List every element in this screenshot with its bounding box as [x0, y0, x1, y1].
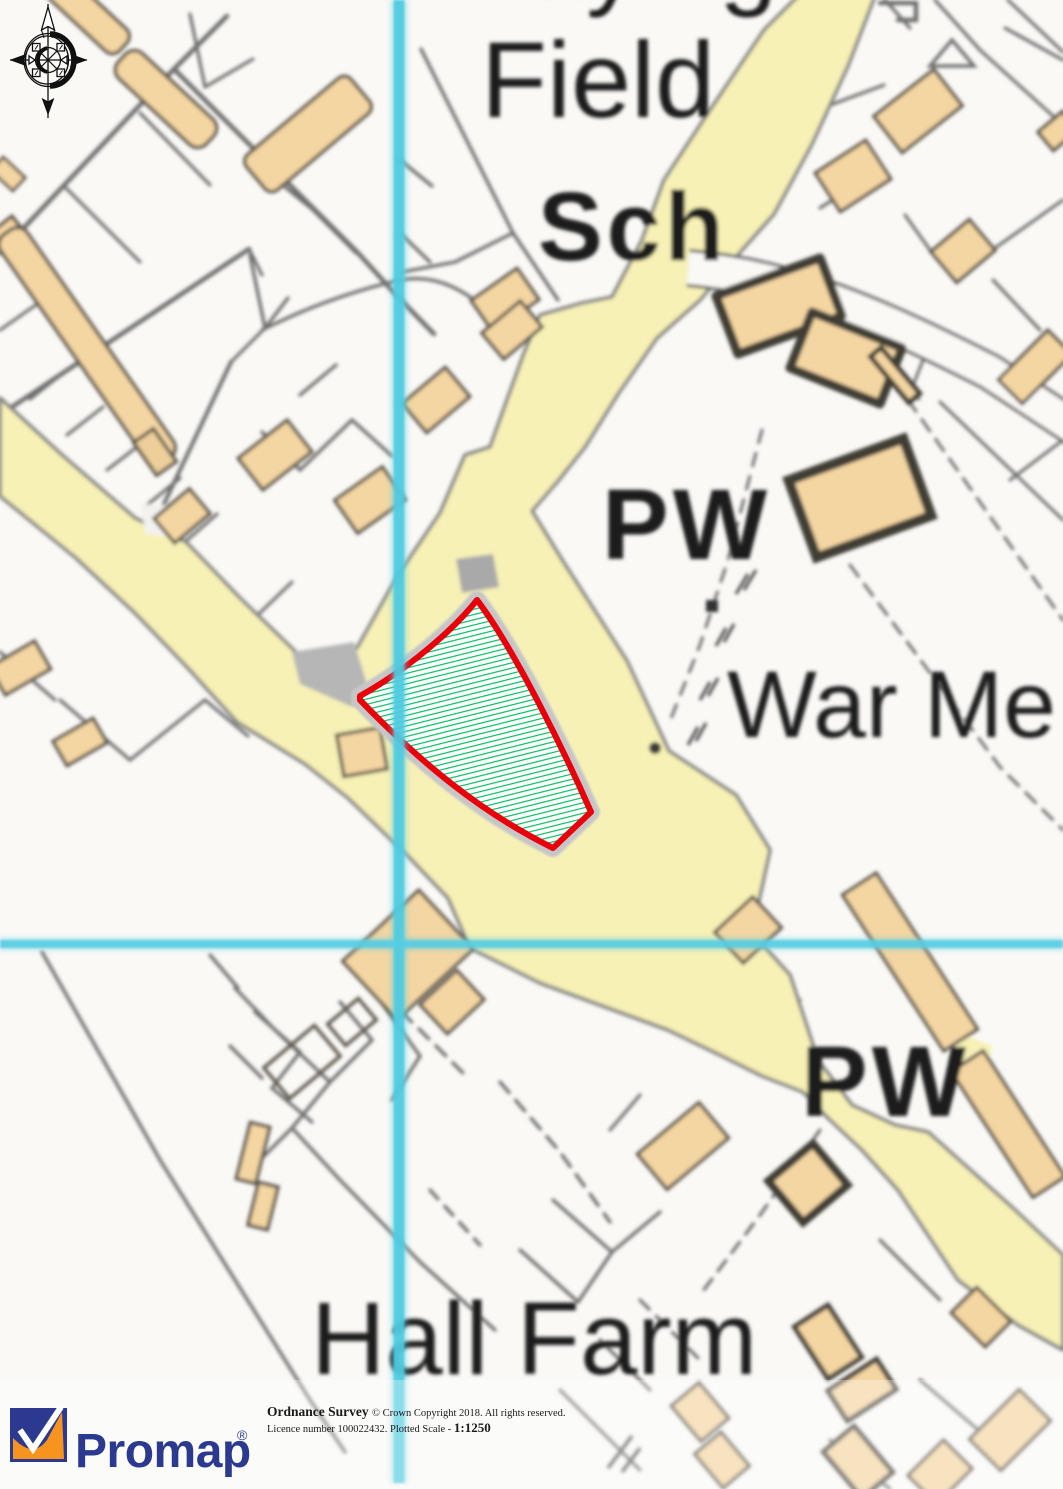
svg-text:Hall Farm: Hall Farm — [311, 1281, 757, 1396]
svg-text:Playing: Playing — [436, 0, 777, 19]
svg-text:Field: Field — [481, 19, 715, 140]
svg-text:War Me: War Me — [727, 652, 1056, 758]
svg-text:PW: PW — [602, 469, 771, 581]
svg-text:Promap: Promap — [75, 1425, 251, 1478]
svg-text:Sch: Sch — [538, 172, 728, 281]
svg-text:®: ® — [237, 1427, 248, 1443]
svg-text:PW: PW — [801, 1026, 970, 1138]
